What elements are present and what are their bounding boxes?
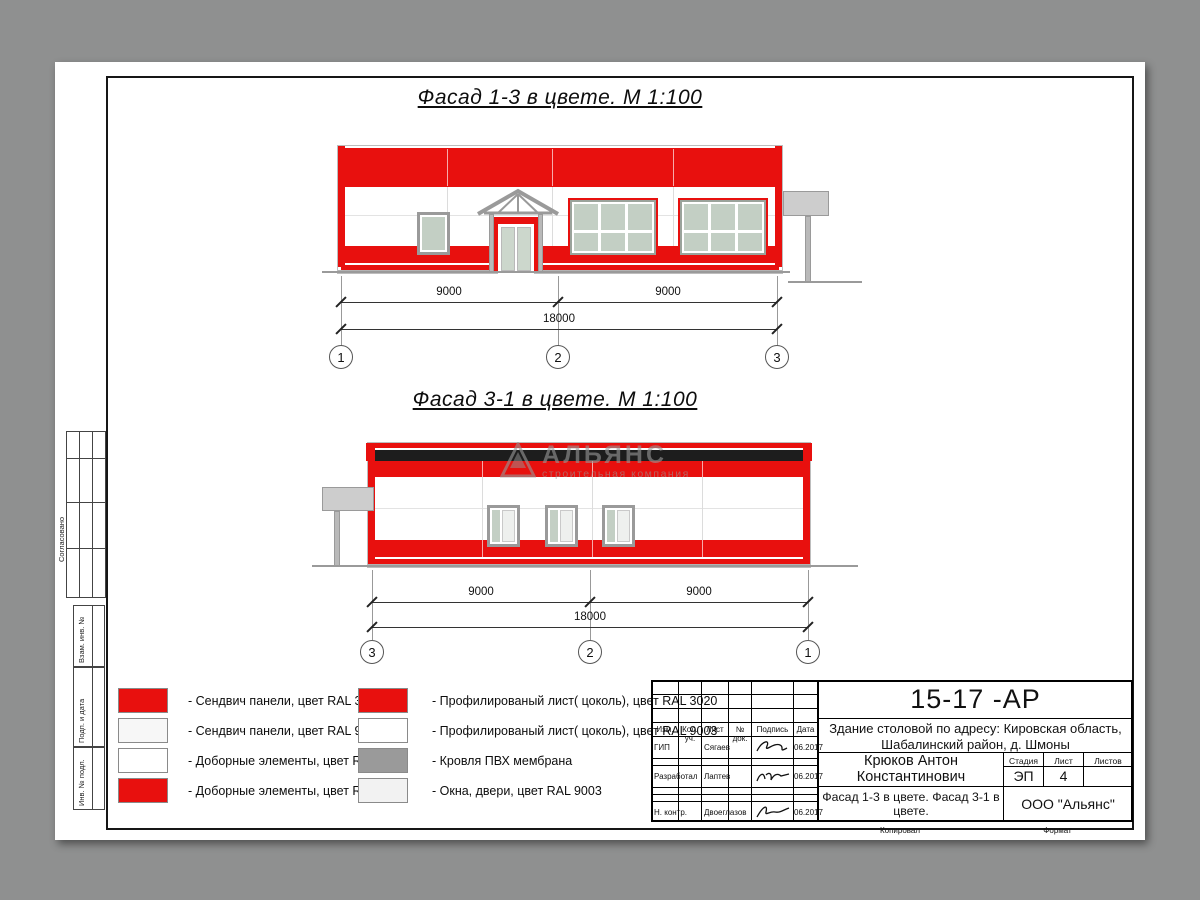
dim-value: 9000 [431, 586, 531, 598]
tb-line [651, 787, 818, 788]
legend-label: - Кровля ПВХ мембрана [432, 754, 572, 768]
glass-pane [711, 233, 735, 251]
tb-line [651, 722, 818, 723]
glass-pane [684, 233, 708, 251]
chief-name: Крюков Антон Константинович [820, 754, 1002, 784]
facade31-joint-3b [702, 540, 703, 557]
dim-value: 9000 [399, 286, 499, 298]
facade13-top-band [343, 148, 777, 187]
watermark-subtitle: строительная компания [542, 468, 690, 480]
dim-value-total: 18000 [540, 611, 640, 623]
facade13-joint-1t [447, 149, 448, 186]
axis-bubble: 3 [360, 640, 384, 664]
sheet-content-title: Фасад 1-3 в цвете. Фасад 3-1 в цвете. [820, 788, 1002, 820]
tb-line [651, 694, 818, 695]
tb-col-izm: Изм. [652, 725, 678, 734]
stage-value: ЭП [1004, 767, 1043, 785]
facade13-joint-3t [673, 149, 674, 186]
margin-line [79, 431, 80, 598]
facade13-canopy-roof [783, 191, 829, 216]
legend-label: - Сендвич панели, цвет RAL 3020 [188, 694, 382, 708]
facade13-drawing [338, 146, 782, 273]
ground-line-1b [788, 281, 862, 283]
glass-pane [574, 233, 598, 251]
dim-value: 9000 [618, 286, 718, 298]
window-frame [570, 200, 656, 255]
facade13-window-small [417, 212, 450, 255]
object-name-line1: Здание столовой по адресу: Кировская обл… [820, 721, 1131, 737]
ground-line-1 [322, 271, 790, 273]
extension-line [341, 276, 342, 346]
legend-swatch [118, 748, 168, 773]
tb-line [651, 765, 818, 766]
legend-swatch [118, 778, 168, 803]
glass-pane [628, 233, 652, 251]
podp-data-label: Подп. и дата [77, 699, 86, 743]
window-leaf [502, 510, 515, 542]
signature-developer [754, 767, 792, 785]
ground-line-2 [312, 565, 858, 567]
company-watermark: АЛЬЯНС строительная компания [500, 442, 690, 480]
axis-bubble: 1 [796, 640, 820, 664]
margin-line [66, 502, 106, 503]
drawing-sheet: Фасад 1-3 в цвете. М 1:100 [0, 0, 1200, 900]
sheets-label: Листов [1084, 756, 1132, 766]
dimension-line-total [341, 329, 777, 330]
entrance-door [498, 224, 534, 274]
format-label: Формат [1030, 826, 1085, 835]
tb-col-dok: № док. [729, 725, 751, 743]
facade13-window-large-2 [678, 198, 768, 257]
facade31-joint-1m [482, 477, 483, 540]
glass-pane [738, 233, 762, 251]
margin-line [92, 747, 93, 810]
facade31-joint-2b [592, 540, 593, 557]
axis-bubble: 2 [578, 640, 602, 664]
axis-bubble: 1 [329, 345, 353, 369]
extension-line [372, 570, 373, 640]
legend-swatch [358, 778, 408, 803]
facade31-joint-1b [482, 540, 483, 557]
facade31-bottom-band [373, 540, 805, 557]
facade31-joint-3t [702, 461, 703, 477]
window-leaf [560, 510, 573, 542]
facade13-title: Фасад 1-3 в цвете. М 1:100 [350, 86, 770, 110]
window-frame [680, 200, 766, 255]
extension-line [808, 570, 809, 640]
margin-line [92, 667, 93, 747]
watermark-title: АЛЬЯНС [542, 442, 690, 468]
extension-line [590, 570, 591, 640]
glass-pane [422, 217, 445, 250]
soglasovano-label: Согласовано [57, 517, 66, 562]
facade31-canopy-post [334, 511, 340, 566]
signature-gip [754, 738, 792, 756]
door-leaf-left [501, 227, 515, 271]
glass-pane [574, 204, 598, 230]
facade31-title: Фасад 3-1 в цвете. М 1:100 [345, 388, 765, 412]
legend-swatch [358, 688, 408, 713]
legend-row: - Сендвич панели, цвет RAL 3020 [118, 688, 382, 713]
facade31-window-1 [487, 505, 520, 547]
object-name-line2: Шабалинский район, д. Шмоны [820, 737, 1131, 753]
approval-grid [66, 431, 106, 598]
dim-value-total: 18000 [509, 313, 609, 325]
tb-role: Н. контр. [654, 808, 687, 817]
glass-pane [607, 510, 615, 542]
facade31-joint-2m [592, 477, 593, 540]
facade13-canopy-post [805, 216, 811, 283]
facade31-window-2 [545, 505, 578, 547]
vzam-inv-label: Взам. инв. № [77, 617, 86, 663]
facade13-left-edge [338, 146, 345, 267]
tb-date: 06.2017 [794, 808, 823, 817]
tb-col-koluch: Кол. уч. [679, 725, 701, 743]
margin-line [66, 548, 106, 549]
facade31-canopy-roof [322, 487, 374, 511]
glass-pane [601, 233, 625, 251]
tb-name: Двоеглазов [704, 808, 747, 817]
glass-pane [628, 204, 652, 230]
legend-label: - Окна, двери, цвет RAL 9003 [432, 784, 602, 798]
legend-row: - Окна, двери, цвет RAL 9003 [358, 778, 602, 803]
tb-name: Лаптев [704, 772, 730, 781]
facade31-joint-1t [482, 461, 483, 477]
tb-line [651, 708, 818, 709]
extension-line [558, 276, 559, 346]
facade31-joint-3m [702, 477, 703, 540]
tb-line [651, 794, 818, 795]
sheets-value [1084, 767, 1132, 785]
glass-pane [711, 204, 735, 230]
porch-post-right [538, 214, 543, 273]
facade31-panel-joint-h [375, 508, 803, 509]
sheet-label: Лист [1044, 756, 1083, 766]
extension-line [777, 276, 778, 346]
glass-pane [492, 510, 500, 542]
axis-bubble: 2 [546, 345, 570, 369]
inv-podl-label: Инв. № подл. [77, 759, 86, 806]
legend-row: - Кровля ПВХ мембрана [358, 748, 572, 773]
tb-col-podpis: Подпись [752, 725, 793, 734]
watermark-text: АЛЬЯНС строительная компания [542, 442, 690, 480]
window-leaf [617, 510, 630, 542]
company-name: ООО "Альянс" [1004, 788, 1132, 820]
legend-row: - Сендвич панели, цвет RAL 9003 [118, 718, 382, 743]
tb-date: 06.2017 [794, 743, 823, 752]
margin-line [66, 458, 106, 459]
door-leaf-right [517, 227, 531, 271]
margin-line [92, 431, 93, 598]
legend-swatch [358, 748, 408, 773]
tb-col-data: Дата [794, 725, 817, 734]
sheet-value: 4 [1044, 767, 1083, 785]
legend-swatch [118, 688, 168, 713]
tb-line [818, 786, 1133, 787]
glass-pane [550, 510, 558, 542]
legend-swatch [118, 718, 168, 743]
porch-gable-truss [476, 188, 560, 216]
stage-label: Стадия [1004, 756, 1043, 766]
facade13-right-edge [775, 146, 782, 267]
tb-col-list: Лист [702, 725, 728, 734]
glass-pane [601, 204, 625, 230]
alliance-logo-icon [500, 442, 536, 478]
facade13-joint-3m [673, 187, 674, 246]
project-code: 15-17 -АР [820, 682, 1131, 716]
legend-label: - Сендвич панели, цвет RAL 9003 [188, 724, 382, 738]
glass-pane [684, 204, 708, 230]
tb-role: ГИП [654, 743, 670, 752]
facade13-window-large-1 [568, 198, 658, 257]
tb-line [651, 758, 818, 759]
facade31-right-edge [803, 448, 810, 564]
dim-value: 9000 [649, 586, 749, 598]
tb-line [818, 718, 1133, 719]
legend-swatch [358, 718, 408, 743]
tb-line [651, 801, 818, 802]
facade31-window-3 [602, 505, 635, 547]
margin-line [92, 605, 93, 667]
tb-date: 06.2017 [794, 772, 823, 781]
facade13-joint-2t [552, 149, 553, 186]
dimension-line-total [372, 627, 808, 628]
signature-ncontr [754, 802, 792, 820]
glass-pane [738, 204, 762, 230]
tb-role: Разработал [654, 772, 698, 781]
tb-name: Сягаев [704, 743, 730, 752]
axis-bubble: 3 [765, 345, 789, 369]
copied-label: Копировал [870, 826, 930, 835]
